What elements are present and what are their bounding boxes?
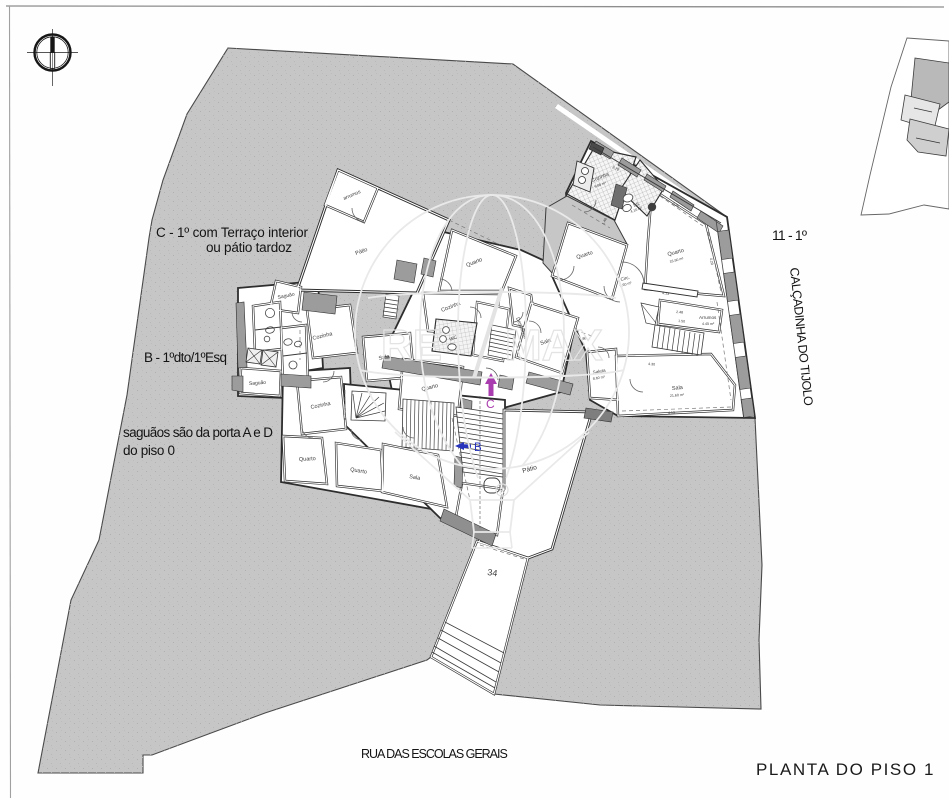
- svg-text:ou pátio tardoz: ou pátio tardoz: [206, 240, 292, 255]
- svg-text:4.45 m²: 4.45 m²: [702, 322, 715, 326]
- svg-text:R: R: [499, 486, 506, 496]
- svg-text:saguãos são da porta A e D: saguãos são da porta A e D: [123, 425, 273, 440]
- svg-text:MAX: MAX: [505, 321, 603, 370]
- svg-text:B: B: [474, 442, 482, 454]
- svg-text:Sala: Sala: [672, 385, 684, 392]
- svg-text:2.48: 2.48: [676, 310, 683, 315]
- svg-text:4.13: 4.13: [668, 411, 675, 415]
- svg-text:Arrumos: Arrumos: [699, 315, 717, 320]
- svg-text:1.50: 1.50: [678, 319, 685, 324]
- svg-text:11 - 1º: 11 - 1º: [772, 227, 807, 243]
- svg-text:4.30: 4.30: [648, 362, 655, 366]
- svg-text:do piso 0: do piso 0: [123, 443, 175, 458]
- svg-text:RUA DAS ESCOLAS GERAIS: RUA DAS ESCOLAS GERAIS: [361, 747, 509, 761]
- svg-text:PLANTA DO PISO 1: PLANTA DO PISO 1: [756, 760, 936, 779]
- svg-text:RE: RE: [381, 321, 442, 370]
- svg-text:Saguão: Saguão: [249, 380, 267, 387]
- svg-text:Quarto: Quarto: [299, 456, 316, 463]
- svg-text:C: C: [486, 397, 495, 411]
- svg-text:C - 1º com Terraço interior: C - 1º com Terraço interior: [156, 225, 309, 240]
- svg-text:34: 34: [487, 567, 498, 578]
- svg-text:B - 1ºdto/1ºEsq: B - 1ºdto/1ºEsq: [144, 350, 227, 365]
